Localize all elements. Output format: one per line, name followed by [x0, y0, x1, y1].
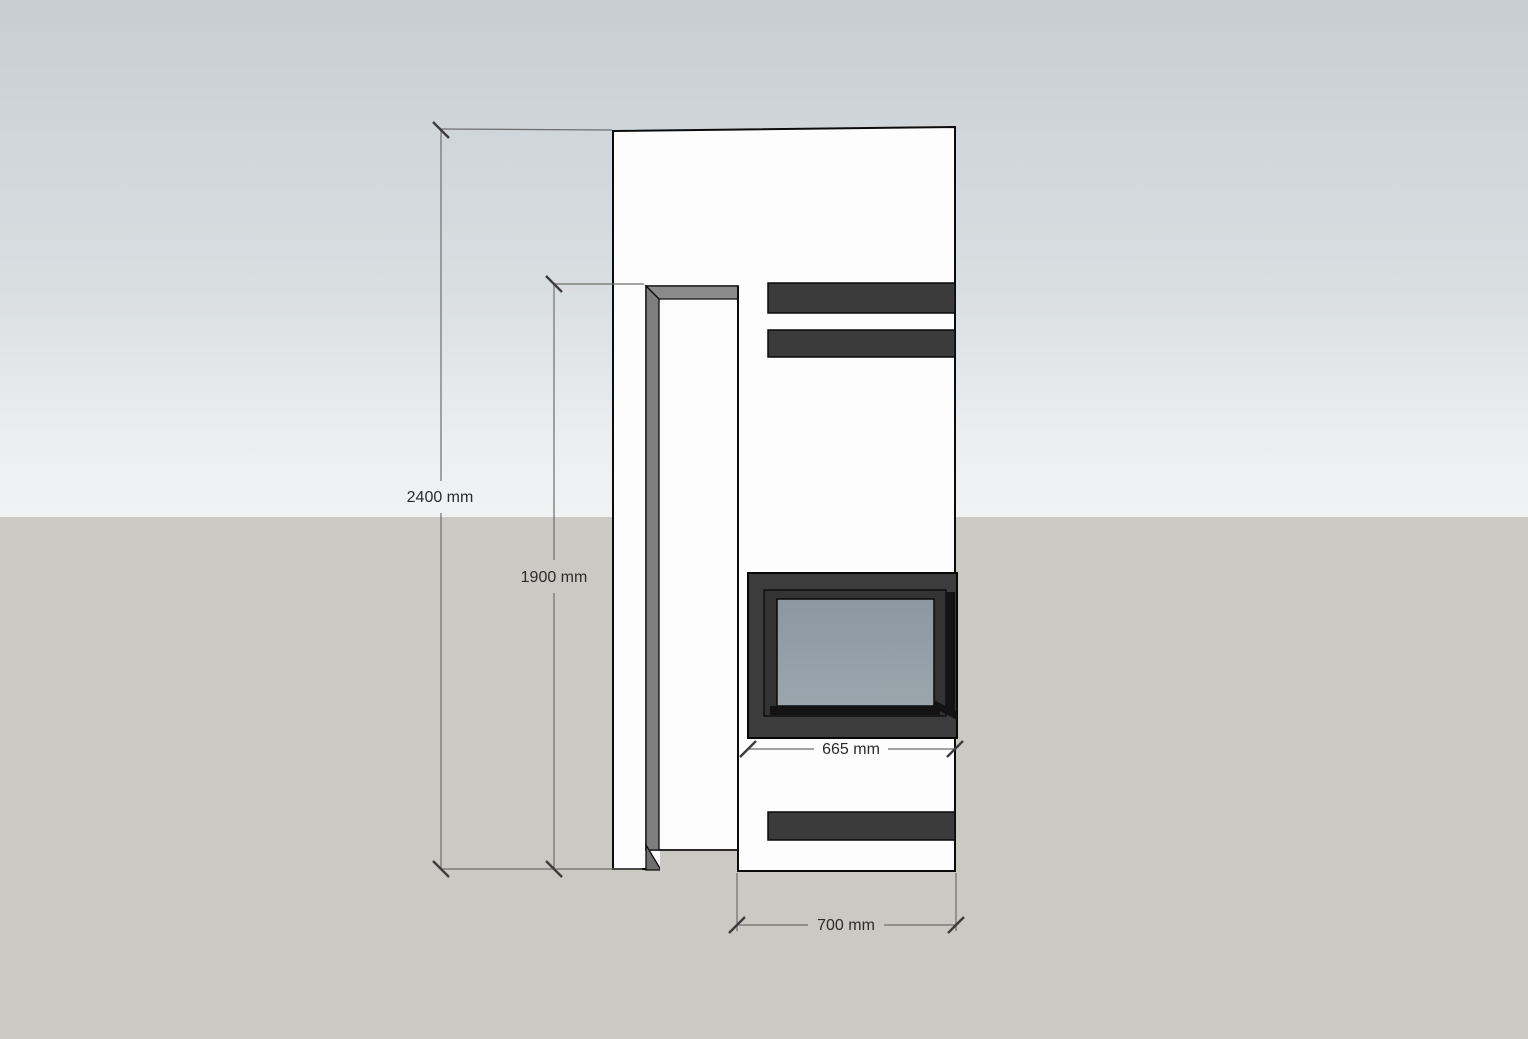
render-canvas: 2400 mm 1900 mm 665 mm 700 mm: [0, 0, 1528, 1039]
firebox-hearth-shadow: [770, 706, 940, 715]
firebox-glass: [777, 599, 934, 706]
wood-niche-interior: [646, 286, 738, 850]
dimension-label-firebox-width: 665 mm: [822, 741, 880, 758]
niche-floor-ground: [660, 851, 737, 877]
fireplace-model: [613, 127, 957, 877]
dimension-label-niche-height: 1900 mm: [521, 569, 588, 586]
vent-slat-lower: [768, 812, 955, 840]
vent-slat-upper-1: [768, 283, 955, 313]
niche-header-face: [646, 286, 738, 299]
sketchup-viewport: 2400 mm 1900 mm 665 mm 700 mm: [0, 0, 1528, 1039]
firebox: [748, 573, 957, 738]
dimension-label-overall-height: 2400 mm: [407, 489, 474, 506]
niche-jamb-face: [646, 286, 659, 850]
vent-slat-upper-2: [768, 330, 955, 357]
firebox-side-shadow: [946, 592, 955, 712]
dimension-label-base-width: 700 mm: [817, 917, 875, 934]
